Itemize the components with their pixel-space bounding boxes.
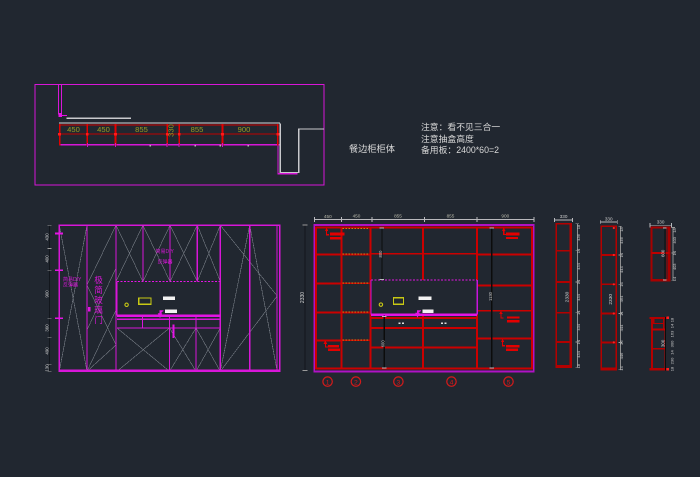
svg-text:230: 230 [670, 357, 675, 364]
svg-text:2330: 2330 [300, 292, 306, 303]
svg-text:18: 18 [576, 224, 581, 229]
svg-text:855: 855 [447, 214, 455, 219]
svg-text:446: 446 [619, 352, 624, 359]
svg-text:备用板：2400*60=2: 备用板：2400*60=2 [421, 144, 499, 155]
svg-text:600: 600 [661, 249, 666, 257]
svg-text:18: 18 [576, 363, 581, 368]
svg-text:450: 450 [97, 125, 110, 134]
svg-text:14: 14 [619, 282, 624, 287]
svg-text:490: 490 [45, 347, 50, 355]
svg-text:330: 330 [560, 214, 568, 219]
svg-text:14: 14 [619, 366, 624, 371]
svg-text:5: 5 [507, 379, 511, 386]
svg-text:注意：看不见三合一: 注意：看不见三合一 [421, 121, 500, 132]
svg-text:600: 600 [380, 340, 385, 348]
svg-text:4: 4 [450, 379, 454, 386]
svg-text:450: 450 [353, 214, 361, 219]
svg-text:玻: 玻 [94, 294, 103, 305]
svg-text:450: 450 [324, 214, 332, 219]
svg-text:800: 800 [378, 250, 383, 258]
svg-text:14: 14 [576, 310, 581, 315]
svg-text:360: 360 [45, 324, 50, 332]
svg-text:2330: 2330 [608, 294, 614, 305]
svg-text:163: 163 [670, 330, 675, 337]
svg-text:14: 14 [672, 276, 677, 281]
svg-text:餐边柜柜体: 餐边柜柜体 [349, 143, 395, 154]
svg-text:简: 简 [94, 284, 103, 295]
svg-text:3: 3 [397, 379, 401, 386]
svg-text:330: 330 [605, 216, 613, 221]
svg-text:434: 434 [576, 323, 581, 330]
svg-text:900: 900 [238, 125, 251, 134]
svg-text:403: 403 [672, 236, 677, 243]
svg-text:444: 444 [619, 265, 624, 272]
svg-text:300: 300 [670, 340, 675, 347]
svg-text:14: 14 [576, 279, 581, 284]
svg-text:434: 434 [576, 293, 581, 300]
svg-text:2330: 2330 [565, 291, 571, 302]
svg-text:900: 900 [45, 290, 50, 298]
svg-text:18: 18 [670, 366, 675, 371]
svg-text:反弹器: 反弹器 [158, 259, 173, 266]
svg-text:14: 14 [670, 350, 675, 355]
svg-text:436: 436 [576, 233, 581, 240]
svg-text:900: 900 [501, 214, 509, 219]
svg-text:855: 855 [191, 125, 204, 134]
svg-text:门: 门 [94, 314, 103, 325]
svg-text:444: 444 [619, 324, 624, 331]
svg-text:130: 130 [45, 364, 50, 372]
svg-text:2: 2 [354, 379, 358, 386]
svg-text:400: 400 [45, 255, 50, 263]
svg-text:注意抽盒高度: 注意抽盒高度 [421, 133, 474, 144]
svg-text:330: 330 [657, 219, 665, 224]
svg-text:403: 403 [672, 263, 677, 270]
svg-text:18: 18 [670, 317, 675, 322]
svg-text:300: 300 [660, 339, 665, 347]
svg-text:18: 18 [672, 228, 677, 233]
svg-text:14: 14 [619, 252, 624, 257]
svg-text:璃: 璃 [94, 304, 103, 315]
svg-text:1130: 1130 [488, 291, 493, 301]
svg-text:1: 1 [326, 379, 330, 386]
svg-text:430: 430 [45, 233, 50, 241]
svg-text:855: 855 [135, 125, 148, 134]
svg-text:14: 14 [670, 323, 675, 328]
svg-text:855: 855 [394, 214, 402, 219]
svg-text:446: 446 [619, 236, 624, 243]
svg-text:330: 330 [166, 124, 175, 137]
svg-text:14: 14 [672, 250, 677, 255]
svg-text:434: 434 [576, 262, 581, 269]
svg-text:18: 18 [619, 227, 624, 232]
svg-text:434: 434 [576, 350, 581, 357]
svg-text:14: 14 [619, 311, 624, 316]
svg-text:36: 36 [619, 340, 624, 345]
svg-text:14: 14 [576, 339, 581, 344]
svg-text:464: 464 [619, 295, 624, 302]
svg-text:14: 14 [576, 248, 581, 253]
svg-text:反弹器: 反弹器 [63, 281, 78, 288]
svg-text:简易DIY: 简易DIY [156, 248, 175, 255]
svg-text:450: 450 [67, 125, 80, 134]
svg-text:极: 极 [94, 274, 103, 285]
